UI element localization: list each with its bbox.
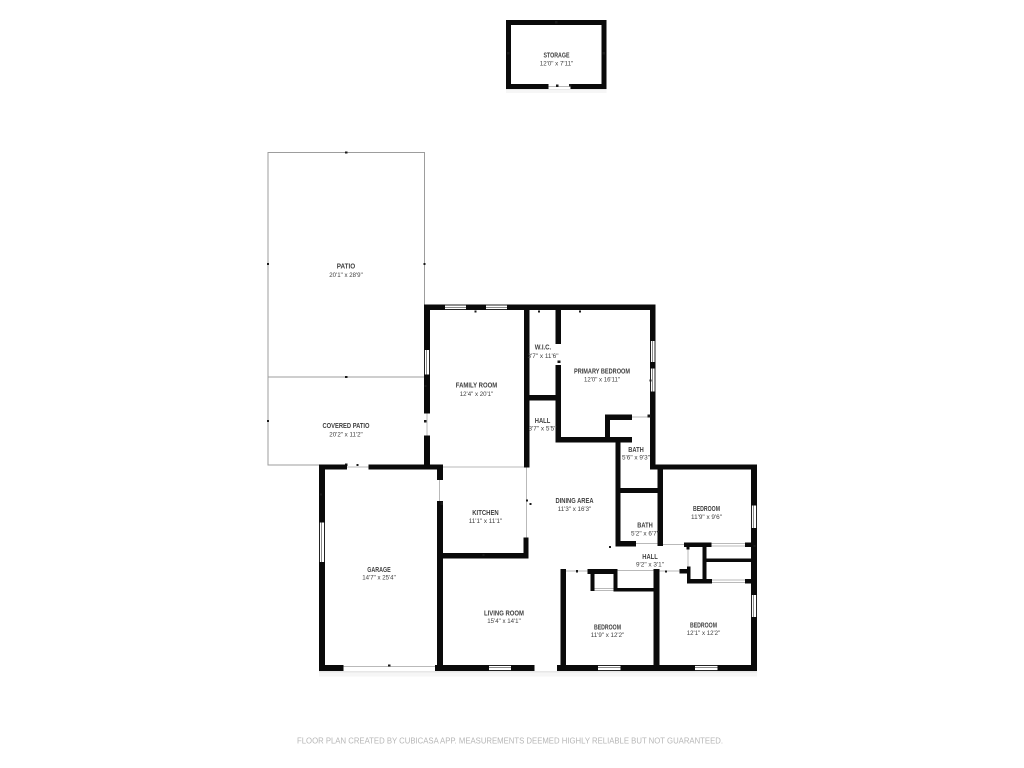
- svg-text:HALL: HALL: [642, 554, 658, 561]
- svg-text:STORAGE: STORAGE: [544, 53, 570, 60]
- svg-text:FAMILY ROOM: FAMILY ROOM: [456, 383, 498, 390]
- svg-text:14'7" x 25'4": 14'7" x 25'4": [362, 575, 396, 582]
- svg-text:12'0" x 7'11": 12'0" x 7'11": [540, 61, 574, 68]
- svg-text:GARAGE: GARAGE: [367, 567, 391, 574]
- svg-text:BATH: BATH: [628, 447, 644, 454]
- svg-text:3'7" x 11'6": 3'7" x 11'6": [528, 353, 560, 360]
- svg-text:11'1" x 11'1": 11'1" x 11'1": [469, 518, 503, 525]
- svg-text:BATH: BATH: [637, 523, 653, 530]
- svg-text:20'2" x 11'2": 20'2" x 11'2": [329, 432, 363, 439]
- svg-text:12'0" x 16'11": 12'0" x 16'11": [584, 377, 621, 384]
- svg-text:HALL: HALL: [535, 418, 551, 425]
- svg-text:KITCHEN: KITCHEN: [472, 510, 499, 517]
- svg-text:BEDROOM: BEDROOM: [693, 506, 720, 513]
- svg-text:W.I.C.: W.I.C.: [535, 345, 552, 352]
- svg-text:12'1" x 12'2": 12'1" x 12'2": [687, 630, 721, 637]
- svg-text:3'7" x 5'5": 3'7" x 5'5": [529, 425, 558, 432]
- svg-text:PATIO: PATIO: [337, 264, 356, 271]
- svg-text:BEDROOM: BEDROOM: [690, 622, 717, 629]
- svg-text:5'2" x 6'7": 5'2" x 6'7": [631, 530, 660, 537]
- svg-text:11'3" x 16'3": 11'3" x 16'3": [558, 506, 592, 513]
- svg-text:PRIMARY BEDROOM: PRIMARY BEDROOM: [574, 369, 630, 376]
- svg-text:9'2" x 3'1": 9'2" x 3'1": [636, 562, 665, 569]
- svg-text:11'9" x 12'2": 11'9" x 12'2": [591, 632, 625, 639]
- svg-text:DINING AREA: DINING AREA: [556, 498, 594, 505]
- svg-text:5'6" x 9'3": 5'6" x 9'3": [622, 454, 651, 461]
- svg-text:FLOOR PLAN CREATED BY CUBICASA: FLOOR PLAN CREATED BY CUBICASA APP. MEAS…: [297, 737, 723, 746]
- svg-text:11'9" x 9'6": 11'9" x 9'6": [691, 514, 723, 521]
- svg-text:COVERED PATIO: COVERED PATIO: [323, 423, 370, 430]
- svg-text:15'4" x 14'1": 15'4" x 14'1": [487, 618, 521, 625]
- svg-text:12'4" x 20'1": 12'4" x 20'1": [460, 391, 494, 398]
- svg-text:20'1" x 28'9": 20'1" x 28'9": [329, 272, 363, 279]
- svg-text:BEDROOM: BEDROOM: [594, 625, 621, 632]
- svg-text:LIVING ROOM: LIVING ROOM: [484, 611, 524, 618]
